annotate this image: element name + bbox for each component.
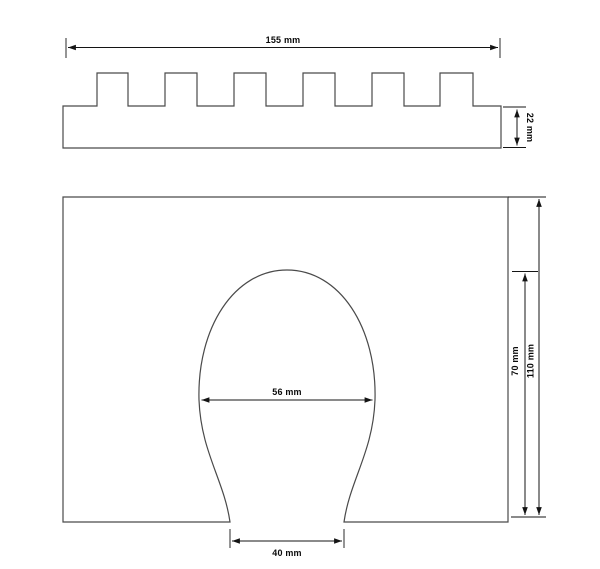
top-profile-view: 155 mm 22 mm bbox=[63, 35, 535, 148]
dimension-overall-width: 155 mm bbox=[66, 35, 500, 58]
dimension-label-overall-width: 155 mm bbox=[266, 35, 301, 45]
front-plate-view: 56 mm 40 mm 70 mm 110 mm bbox=[63, 197, 546, 558]
dimension-label-opening-width: 40 mm bbox=[272, 548, 302, 558]
drawing-svg: 155 mm 22 mm 56 mm 40 mm bbox=[0, 0, 600, 569]
dimension-label-base-height: 22 mm bbox=[525, 113, 535, 143]
comb-profile-outline bbox=[63, 73, 501, 148]
dimension-label-overall-height: 110 mm bbox=[526, 344, 536, 378]
dimension-base-height: 22 mm bbox=[503, 107, 535, 148]
dimension-cutout-max-width: 56 mm bbox=[202, 387, 373, 400]
plate-outline bbox=[63, 197, 508, 522]
dimension-label-cutout-height: 70 mm bbox=[510, 346, 520, 376]
dimension-opening-width: 40 mm bbox=[230, 529, 344, 558]
dimension-cutout-height: 70 mm bbox=[510, 272, 538, 516]
dimension-label-cutout-max-width: 56 mm bbox=[272, 387, 302, 397]
technical-drawing: 155 mm 22 mm 56 mm 40 mm bbox=[0, 0, 600, 569]
